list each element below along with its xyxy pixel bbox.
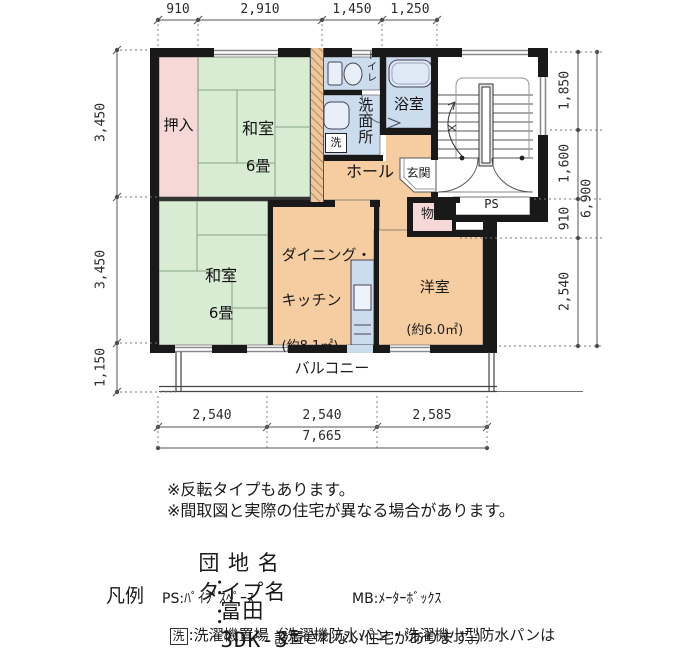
dim-bottom-total: 7,665 <box>287 430 357 445</box>
note-1: ※反転タイプもあります。 <box>167 481 355 499</box>
room-label-genkan: 玄関 <box>401 167 436 181</box>
legend-mb: MB:ﾒｰﾀｰﾎﾞｯｸｽ <box>352 591 441 607</box>
dim-left-3: 1,150 <box>95 337 110 397</box>
laundry-mark-box: 洗 <box>325 133 347 153</box>
hatched-wall <box>310 48 324 202</box>
dim-top-1: 910 <box>150 3 206 18</box>
dim-bottom-3: 2,585 <box>397 409 467 424</box>
washbasin-icon <box>324 102 349 129</box>
room-label-bath: 浴室 <box>384 96 434 113</box>
room-label-washitsu2-size: 6畳 <box>209 304 234 322</box>
legend-laundry-text-2: 設置されない住宅があります。） <box>274 630 490 647</box>
room-label-dk-1: ダイニング・ <box>282 246 372 264</box>
dim-top-4: 1,250 <box>372 3 448 18</box>
dim-bottom-1: 2,540 <box>177 409 247 424</box>
dim-right-3: 910 <box>559 188 574 248</box>
dim-right-4: 2,540 <box>559 261 574 321</box>
dim-right-1: 1,850 <box>559 60 574 120</box>
room-label-western-area: (約6.0㎡) <box>406 323 463 338</box>
dim-right-2: 1,600 <box>559 133 574 193</box>
room-label-washitsu1-size: 6畳 <box>246 157 271 175</box>
room-label-washroom: 洗面所 <box>356 97 373 155</box>
staircase <box>438 78 533 192</box>
room-label-washitsu1: 和室 <box>242 119 274 138</box>
room-label-storage: 物入 <box>413 208 455 223</box>
room-label-washitsu2: 和室 <box>205 266 237 285</box>
dim-right-total: 6,900 <box>581 168 596 228</box>
room-label-balcony: バルコニー <box>272 360 392 377</box>
dim-left-1: 3,450 <box>95 92 110 152</box>
bathtub-icon <box>389 60 432 87</box>
floor-plan-page: 910 2,910 1,450 1,250 3,450 3,450 1,150 … <box>0 0 700 650</box>
dim-bottom-2: 2,540 <box>287 409 357 424</box>
room-label-dk-area: (約8.1㎡) <box>282 339 339 354</box>
legend-laundry-mark: 洗 <box>170 628 188 645</box>
dim-left-2: 3,450 <box>95 239 110 299</box>
legend-title: 凡例 <box>106 586 144 608</box>
note-2: ※間取図と実際の住宅が異なる場合があります。 <box>167 502 515 520</box>
legend-ps: PS:ﾊﾟｲﾌﾟｽﾍﾟｰｽ <box>162 591 254 607</box>
room-label-dk-2: キッチン <box>282 291 342 309</box>
room-label-toilet: トイレ <box>364 50 376 94</box>
room-label-ps: PS <box>453 198 530 212</box>
dim-top-2: 2,910 <box>222 3 298 18</box>
room-label-oshiire: 押入 <box>159 117 198 134</box>
room-label-western: 洋室 <box>420 278 450 296</box>
